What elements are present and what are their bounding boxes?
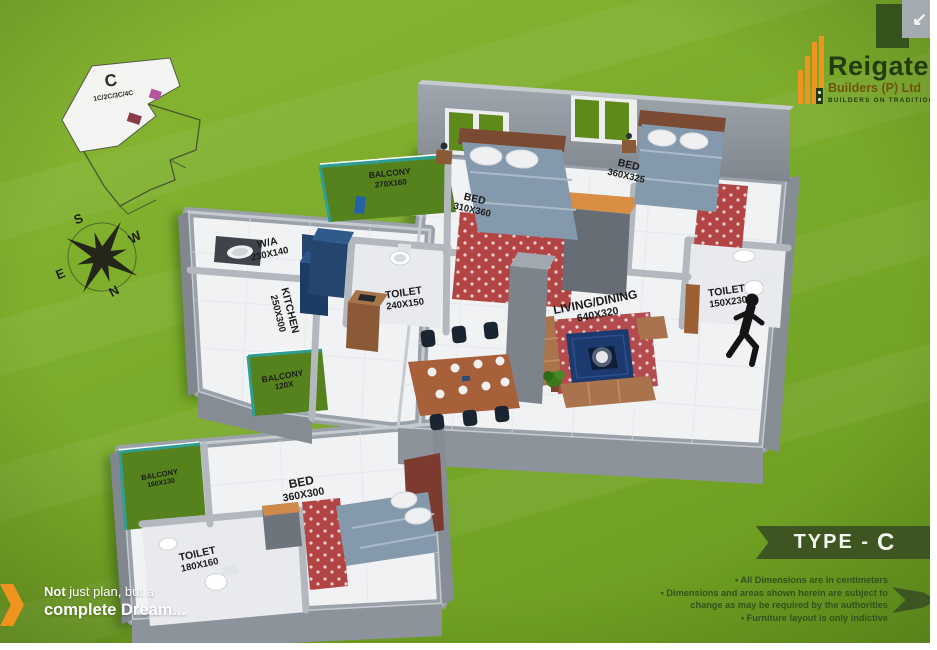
note-line: change as may be required by the authori… (558, 599, 888, 612)
logo-dots-icon (816, 88, 823, 104)
disclaimer-notes: • All Dimensions are in centimeters • Di… (558, 574, 888, 624)
frame-right (930, 0, 937, 650)
company-logo: Reigate Builders (P) Ltd BUILDERS ON TRA… (798, 36, 935, 104)
slogan-lead: Not (44, 584, 66, 599)
type-banner: TYPE - C (756, 526, 932, 559)
floor-plan-poster: C 1C/2C/3C/4C S W E N BALCONY270X160 W/A… (0, 0, 937, 650)
note-line: • All Dimensions are in centimeters (558, 574, 888, 587)
company-subtitle: Builders (P) Ltd (828, 82, 935, 95)
type-banner-unit: C (877, 529, 894, 557)
company-name: Reigate (828, 53, 935, 80)
arrow-down-left-icon: ↙ (912, 9, 927, 30)
company-tagline: BUILDERS ON TRADITION (828, 98, 935, 104)
slogan: Not just plan, but a complete Dream... (44, 584, 186, 621)
note-line: • Dimensions and areas shown herein are … (558, 587, 888, 600)
slogan-line1: just plan, but a (66, 584, 154, 599)
type-banner-prefix: TYPE - (794, 531, 870, 554)
slogan-line2: complete Dream... (44, 600, 186, 621)
note-line: • Furniture layout is only indictive (558, 612, 888, 625)
frame-bottom (0, 643, 937, 650)
